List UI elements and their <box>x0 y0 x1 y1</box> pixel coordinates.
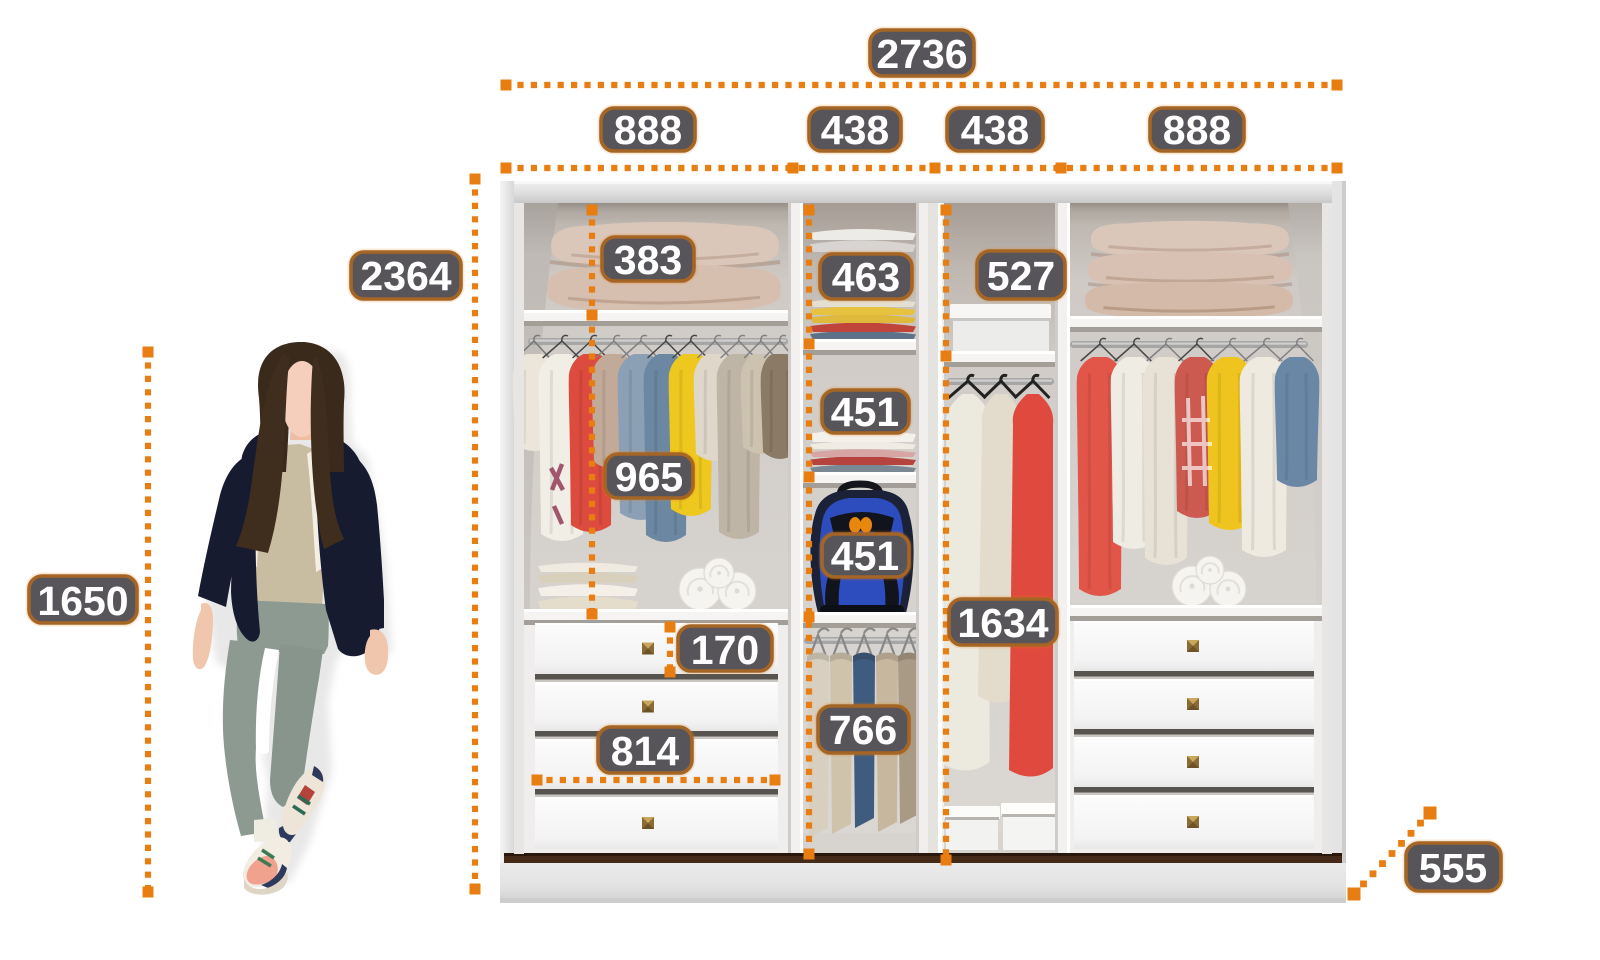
svg-text:1634: 1634 <box>957 600 1048 646</box>
svg-text:888: 888 <box>614 107 682 153</box>
svg-text:888: 888 <box>1163 107 1231 153</box>
svg-text:438: 438 <box>961 107 1029 153</box>
svg-text:170: 170 <box>691 627 759 673</box>
svg-text:1650: 1650 <box>37 578 128 624</box>
svg-text:451: 451 <box>831 533 899 579</box>
svg-text:965: 965 <box>615 454 683 500</box>
svg-text:555: 555 <box>1419 845 1487 891</box>
svg-text:527: 527 <box>987 253 1055 299</box>
svg-text:2364: 2364 <box>360 253 451 299</box>
svg-text:814: 814 <box>611 728 680 774</box>
svg-text:766: 766 <box>829 707 897 753</box>
svg-text:2736: 2736 <box>876 31 967 77</box>
svg-text:463: 463 <box>832 254 900 300</box>
svg-text:451: 451 <box>831 389 899 435</box>
svg-text:438: 438 <box>821 107 889 153</box>
svg-text:383: 383 <box>614 237 682 283</box>
